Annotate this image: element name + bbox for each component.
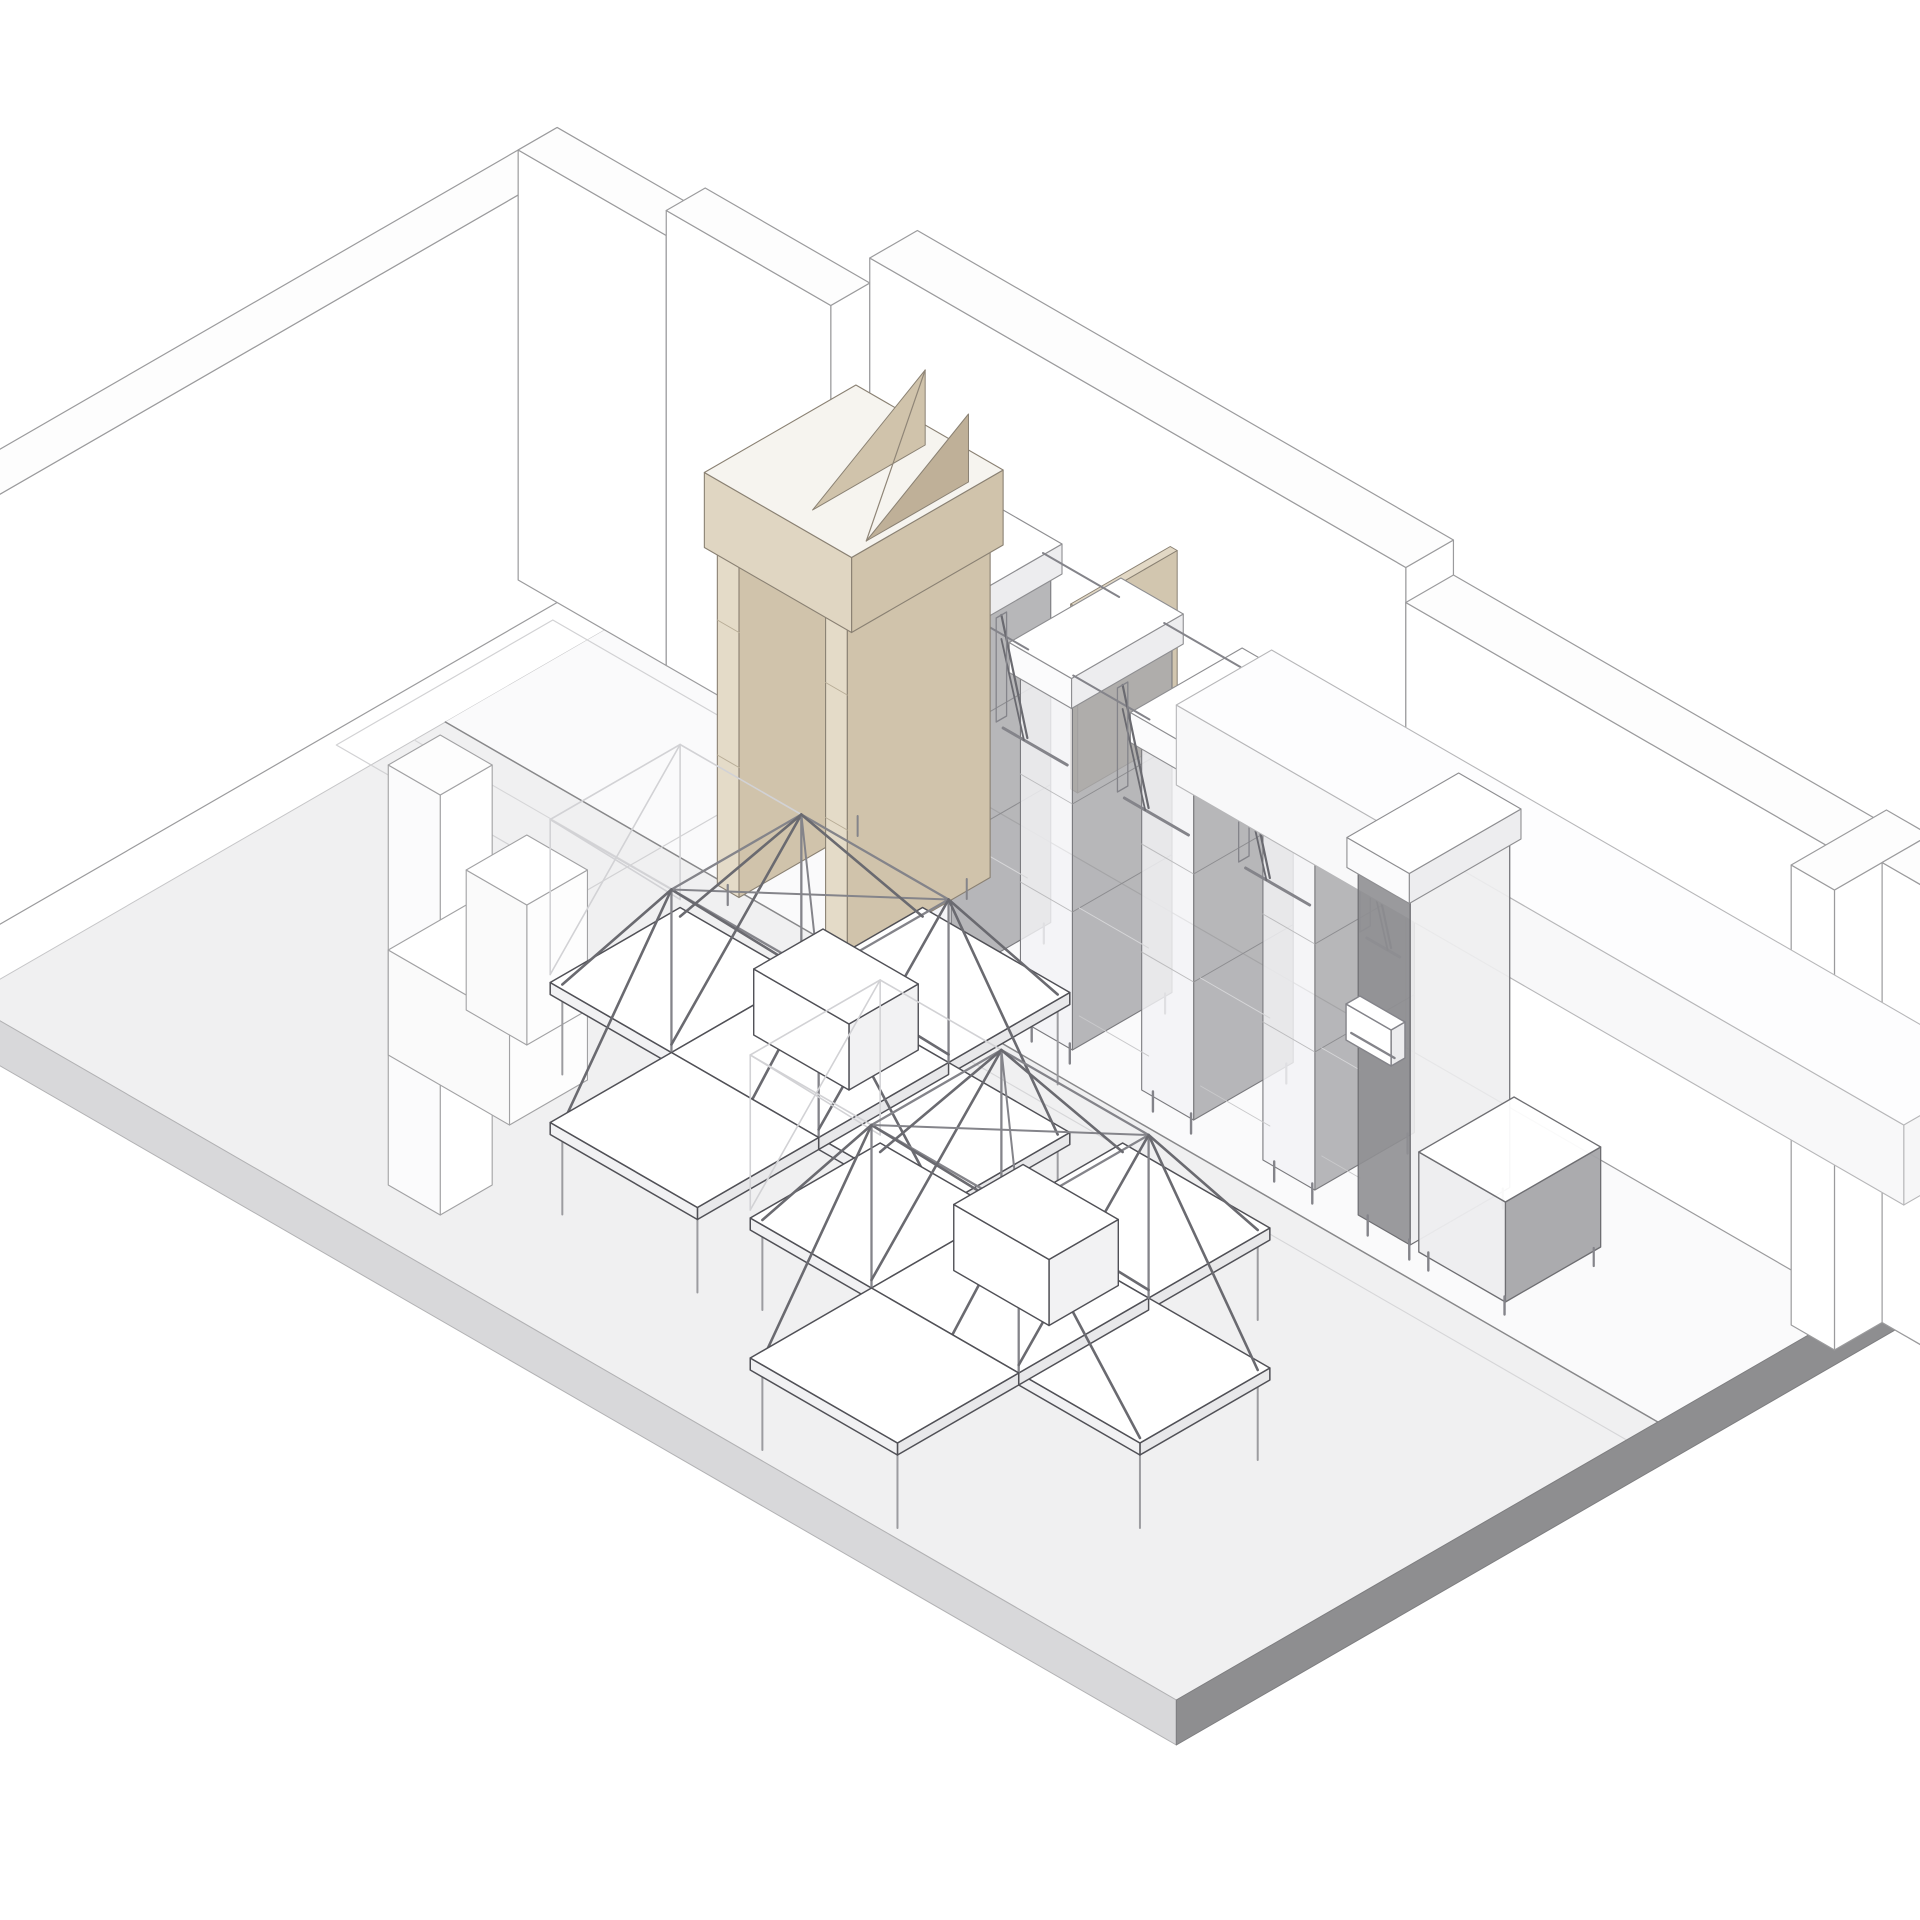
axonometric-drawing <box>0 0 1920 1920</box>
shelf-tower-3-body-face-left <box>1142 742 1194 1120</box>
wall-back-a-face-left <box>518 150 666 666</box>
shelf-tower-4-body-face-left <box>1263 812 1315 1190</box>
axonometric-drawing-page <box>0 0 1920 1920</box>
